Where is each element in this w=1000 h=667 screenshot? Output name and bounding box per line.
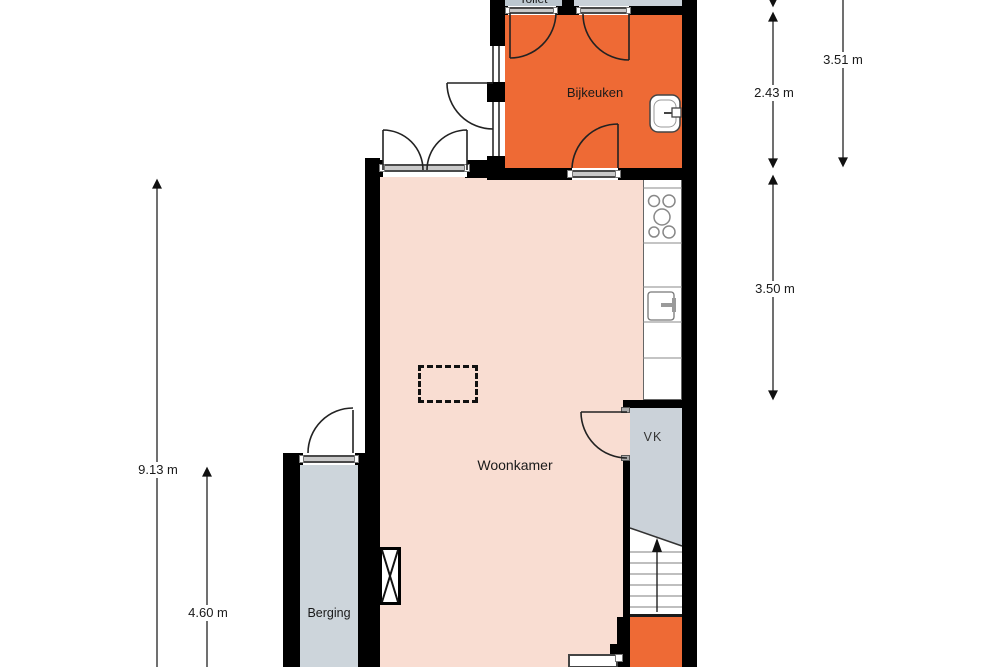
jamb <box>299 455 304 463</box>
threshold-top-right <box>579 7 629 14</box>
room-label-toilet: Toilet <box>505 0 562 7</box>
dimension-label-243: 2.43 m <box>750 85 798 101</box>
wall-vk-top <box>623 400 682 408</box>
jamb <box>615 170 621 178</box>
wall-bijkeuken-bottom-right <box>618 168 682 180</box>
jamb-vk-door <box>621 407 630 413</box>
skylight-dashed-box <box>418 365 478 403</box>
wall-right-exterior <box>682 0 697 667</box>
threshold-bijkeuken-door <box>572 170 618 178</box>
jamb <box>553 7 558 14</box>
floor-plan: Toilet Bijkeuken Woonkamer VK Berging 3.… <box>0 0 1000 667</box>
threshold-french-doors <box>383 164 467 172</box>
jamb <box>354 455 359 463</box>
threshold-berging-door <box>303 455 355 463</box>
dimension-label-350: 3.50 m <box>751 281 799 297</box>
wall-woonkamer-top-right <box>465 160 505 178</box>
room-woonkamer <box>380 177 643 667</box>
wall-toilet-left <box>490 0 505 46</box>
room-label-vk: VK <box>630 429 676 445</box>
jamb <box>615 654 623 662</box>
jamb <box>464 164 470 172</box>
dimension-label-351: 3.51 m <box>818 52 868 68</box>
threshold-toilet <box>508 7 556 14</box>
bottom-fixture <box>568 654 618 667</box>
jamb <box>576 7 581 14</box>
wall-berging-east <box>358 453 367 667</box>
wall-west <box>365 158 380 667</box>
kitchen-counter <box>643 177 682 400</box>
jamb <box>379 164 385 172</box>
jamb <box>505 7 510 14</box>
dimension-label-460: 4.60 m <box>184 605 232 621</box>
jamb <box>626 7 631 14</box>
flue-icon <box>379 547 401 605</box>
jamb-vk-door <box>621 455 630 461</box>
dimension-label-913: 9.13 m <box>134 462 182 478</box>
window-glass-upper <box>492 46 500 82</box>
room-bottom-right <box>630 617 682 667</box>
room-label-woonkamer: Woonkamer <box>455 457 575 473</box>
wall-bijkeuken-bottom-left <box>503 168 572 180</box>
room-label-berging: Berging <box>296 605 362 621</box>
wall-berging-left <box>283 453 300 667</box>
window-glass-lower <box>492 102 500 156</box>
wall-vk-west-lower <box>623 461 630 617</box>
room-berging <box>300 465 358 667</box>
jamb <box>567 170 573 178</box>
wall-block-a <box>487 82 505 102</box>
room-label-bijkeuken: Bijkeuken <box>540 85 650 101</box>
